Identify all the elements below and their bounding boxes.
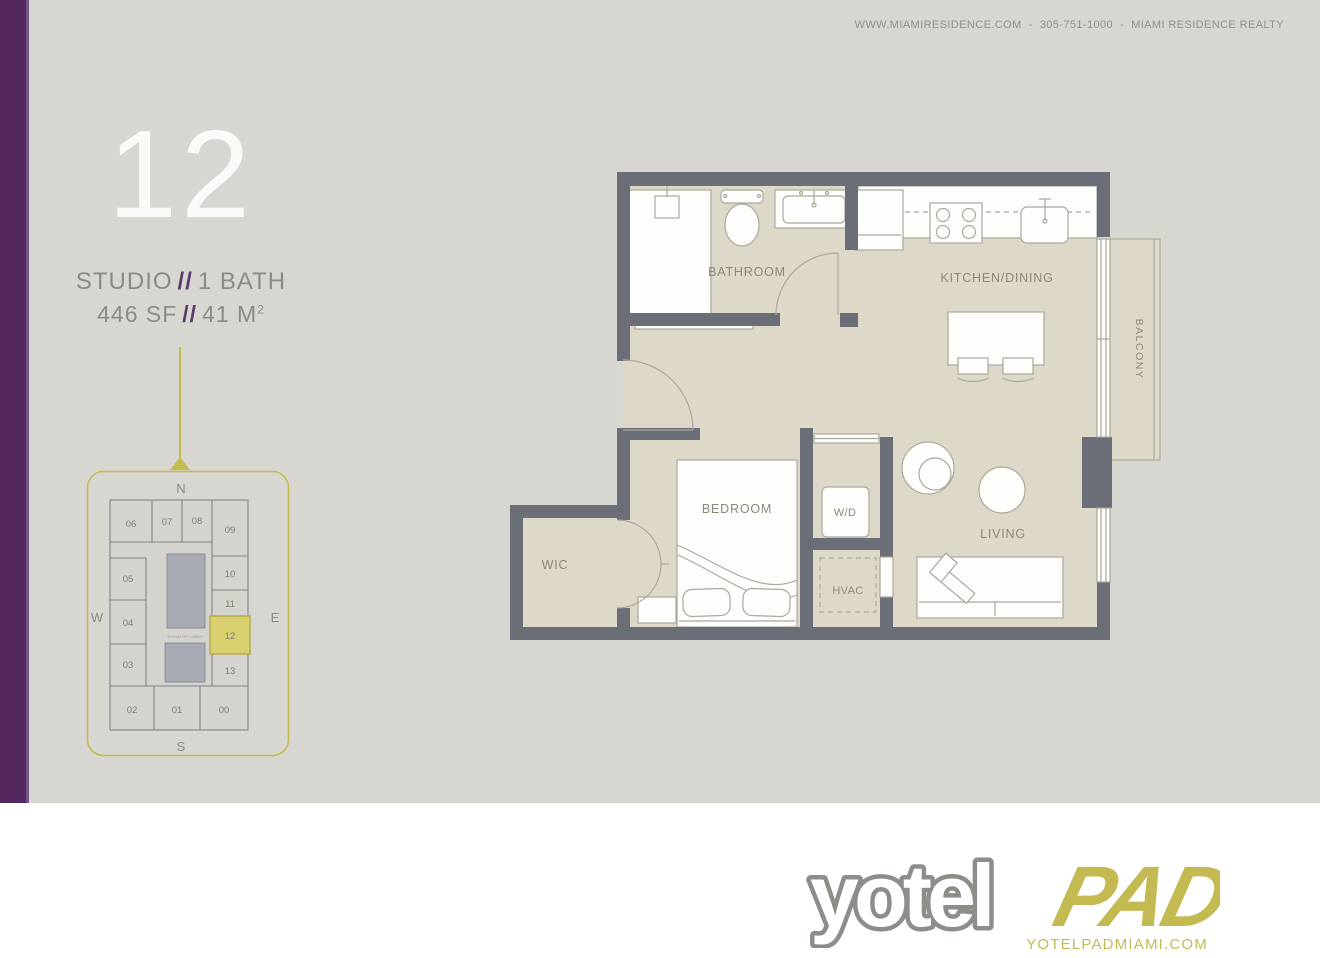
broker-website: WWW.MIAMIRESIDENCE.COM (855, 19, 1022, 31)
floorplan-drawing: BATHROOM KITCHEN/DINING BEDROOM WIC W/D … (505, 165, 1165, 650)
superscript-2: 2 (257, 302, 265, 316)
broker-phone: 305-751-1000 (1040, 19, 1113, 31)
toilet-bowl (725, 204, 759, 246)
elevator-shaft (167, 554, 205, 628)
nightstand (638, 597, 676, 623)
keyplan-unit-label: 00 (219, 705, 230, 716)
keyplan-unit-label: 10 (225, 569, 236, 580)
round-table (979, 467, 1025, 513)
keyplan-unit-label: 05 (123, 574, 134, 585)
unit-area-line: 446 SF//41 M2 (30, 301, 332, 328)
bathroom-label: BATHROOM (708, 265, 786, 279)
logo-pad-text: PAD (1045, 848, 1220, 945)
unit-number: 12 (30, 110, 332, 240)
compass-east: E (271, 610, 280, 625)
keyplan-unit-label: 02 (127, 705, 138, 716)
header-separator: - (1029, 19, 1033, 31)
keyplan-callout-arrow-icon (170, 457, 190, 470)
logo-yotel-text: yotel (810, 846, 990, 945)
keyplan-unit-label: 01 (172, 705, 183, 716)
stove (930, 203, 982, 243)
keyplan-unit-label: 08 (192, 516, 203, 527)
floorplan-panel: WWW.MIAMIRESIDENCE.COM-305-751-1000-MIAM… (0, 0, 1320, 803)
shower (627, 190, 711, 315)
yotelpad-logo: yotel PAD (788, 842, 1220, 948)
compass-west: W (91, 610, 104, 625)
kitchen-fixtures (855, 186, 1097, 250)
yotelpad-website: YOTELPADMIAMI.COM (1026, 936, 1208, 953)
accent-bar (0, 0, 29, 803)
keyplan-callout-line (179, 347, 181, 459)
elevator-shaft (165, 643, 205, 682)
unit-type-line: STUDIO//1 BATH (30, 268, 332, 296)
living-label: LIVING (980, 527, 1026, 541)
wic-label: WIC (542, 558, 569, 572)
pillow (743, 588, 791, 617)
kitchen-dining-label: KITCHEN/DINING (940, 271, 1053, 285)
unit-area-sf: 446 SF (97, 301, 177, 327)
compass-north: N (176, 481, 185, 496)
keyplan-unit-label-highlighted: 12 (225, 631, 236, 642)
pillow (683, 588, 731, 617)
keyplan-unit-label: 07 (162, 517, 173, 528)
broker-header: WWW.MIAMIRESIDENCE.COM-305-751-1000-MIAM… (855, 19, 1284, 31)
keyplan-unit-label: 13 (225, 666, 236, 677)
dining-table (948, 312, 1044, 365)
unit-area-m: 41 M2 (202, 301, 265, 327)
keyplan-unit-label: 06 (126, 519, 137, 530)
keyplan-unit-label: 03 (123, 660, 134, 671)
broker-company: MIAMI RESIDENCE REALTY (1131, 19, 1284, 31)
living-window (1097, 508, 1110, 582)
brochure-page: WWW.MIAMIRESIDENCE.COM-305-751-1000-MIAM… (0, 0, 1320, 958)
header-separator: - (1120, 19, 1124, 31)
slash-separator: // (177, 301, 202, 327)
dining-stool (958, 358, 988, 374)
elevator-lobby-label: ELEVATOR LOBBY (168, 635, 203, 639)
compass-south: S (177, 739, 186, 754)
balcony-label: BALCONY (1133, 319, 1145, 380)
keyplan-unit-label: 09 (225, 525, 236, 536)
unit-type: STUDIO (76, 268, 173, 295)
unit-baths: 1 BATH (198, 268, 286, 295)
wd-label: W/D (834, 507, 857, 519)
slash-separator: // (173, 268, 198, 295)
hvac-closet-door (880, 557, 893, 597)
fridge (855, 190, 903, 250)
toilet-tank (721, 190, 763, 203)
keyplan-unit-label: 04 (123, 618, 134, 629)
keyplan-unit-label: 11 (225, 599, 235, 610)
floor-areas (516, 179, 1162, 633)
dining-stool (1003, 358, 1033, 374)
bedroom-label: BEDROOM (702, 502, 772, 516)
balcony-sliding-door (1097, 239, 1110, 437)
keyplan: N S W E (86, 470, 290, 757)
hvac-label: HVAC (832, 585, 863, 597)
